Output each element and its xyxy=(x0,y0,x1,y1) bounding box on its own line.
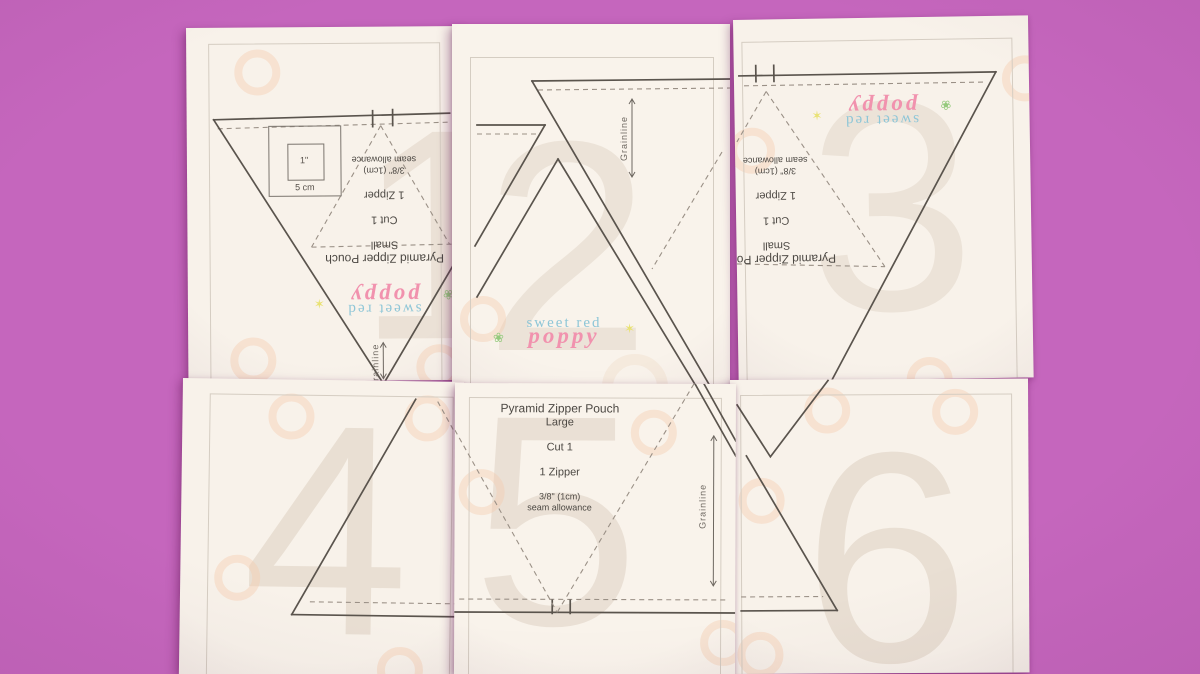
sparkle-icon: ✶ xyxy=(811,109,822,122)
piece-zipper: 1 Zipper xyxy=(475,466,645,479)
sparkle-icon: ✶ xyxy=(314,297,325,310)
grainline-label: Grainline xyxy=(619,116,629,161)
logo-text-poppy: poppy xyxy=(324,284,444,308)
large-piece-label: Pyramid Zipper Pouch Large Cut 1 1 Zippe… xyxy=(475,401,645,513)
sparkle-icon: ✶ xyxy=(624,322,635,335)
page-4-pattern-lines xyxy=(179,378,464,674)
page-6-pattern-lines xyxy=(730,378,1030,674)
piece-cut: Cut 1 xyxy=(299,213,468,226)
piece-title: Pyramid Zipper Pouch xyxy=(733,251,862,268)
logo-text-poppy: poppy xyxy=(821,95,941,120)
pattern-page-5: 5 Pyramid Zipper Pouch Large Cut 1 1 xyxy=(454,383,736,674)
piece-seam: 3/8" (1cm) xyxy=(475,491,645,502)
leaf-icon: ❀ xyxy=(493,331,504,344)
sweet-red-poppy-logo: ❀ ✶ sweet red poppy xyxy=(504,316,624,347)
grainline-label: Grainline xyxy=(697,484,707,529)
logo-text-poppy: poppy xyxy=(504,324,624,347)
piece-zipper: 1 Zipper xyxy=(733,188,861,203)
pattern-page-4: 4 xyxy=(179,378,464,674)
small-piece-label-flipped: Pyramid Zipper Pouch Small Cut 1 1 Zippe… xyxy=(733,154,862,268)
piece-seam-2: seam allowance xyxy=(475,502,645,513)
piece-title: Pyramid Zipper Pouch xyxy=(475,401,645,416)
piece-seam: 3/8" (1cm) xyxy=(733,165,860,178)
pattern-page-3: 3 Pyramid Zipper Pouch Small Cut 1 1 Zip… xyxy=(733,15,1034,382)
piece-seam-2: seam allowance xyxy=(299,154,469,165)
sweet-red-poppy-logo-flipped: ❀ ✶ sweet red poppy xyxy=(821,95,941,128)
piece-title: Pyramid Zipper Pouch xyxy=(300,251,469,266)
piece-cut: Cut 1 xyxy=(475,441,645,454)
grainline-label: Grainline xyxy=(370,344,380,382)
piece-seam: 3/8" (1cm) xyxy=(299,165,468,176)
piece-zipper: 1 Zipper xyxy=(299,188,468,201)
piece-size: Large xyxy=(475,416,645,429)
leaf-icon: ❀ xyxy=(940,99,951,112)
pattern-page-1: 1 1" 5 cm Pyramid Zipper xyxy=(186,26,468,382)
small-piece-label-flipped: Pyramid Zipper Pouch Small Cut 1 1 Zippe… xyxy=(299,154,469,266)
photo-of-pattern-pages: 1 1" 5 cm Pyramid Zipper xyxy=(0,0,1200,674)
piece-cut: Cut 1 xyxy=(733,213,861,228)
piece-size: Small xyxy=(299,238,468,251)
sweet-red-poppy-logo-flipped: ❀ ✶ sweet red poppy xyxy=(324,284,444,316)
pattern-page-2: 2 Grainline ❀ ✶ sweet red popp xyxy=(452,24,730,386)
pattern-page-6: 6 xyxy=(730,378,1030,674)
